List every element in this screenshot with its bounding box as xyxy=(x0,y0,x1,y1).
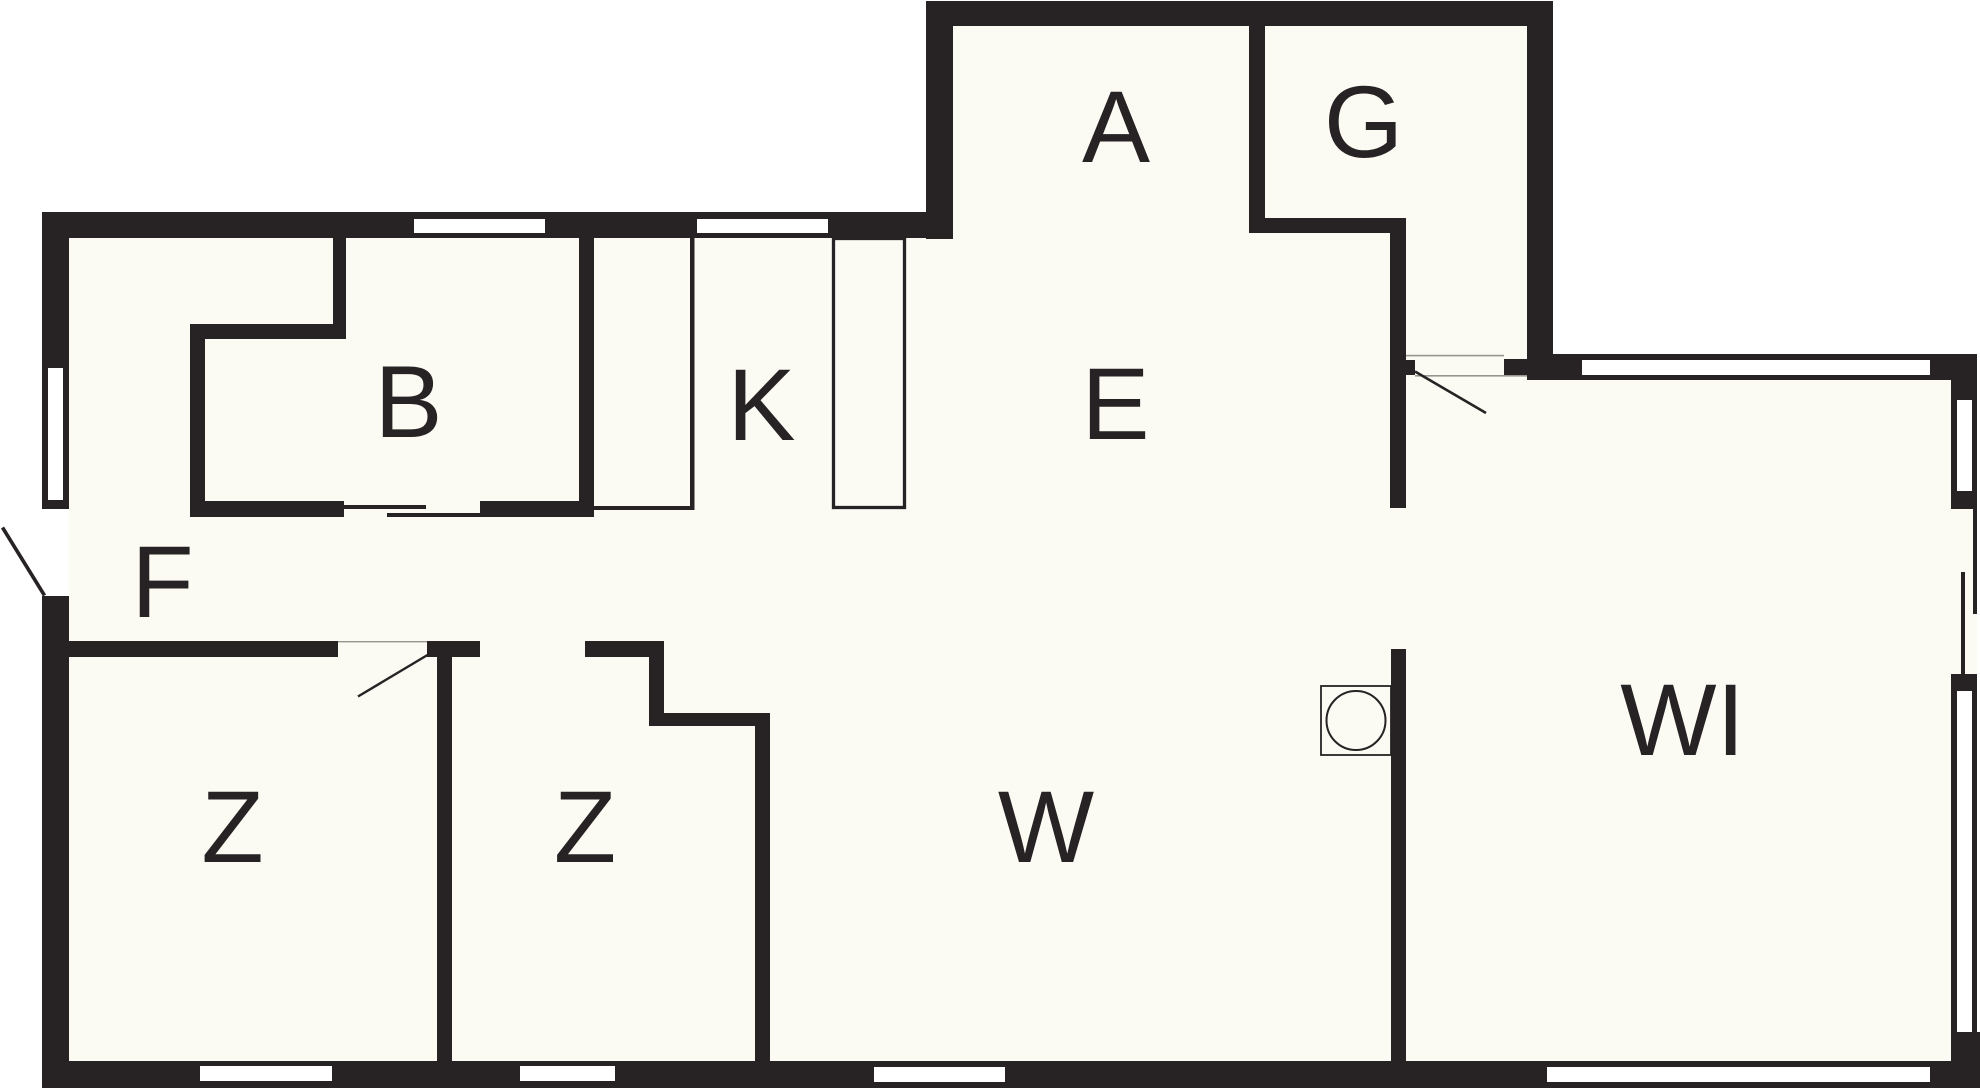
svg-text:B: B xyxy=(374,345,442,459)
svg-text:WI: WI xyxy=(1620,663,1745,777)
svg-text:Z: Z xyxy=(554,770,616,884)
svg-text:Z: Z xyxy=(201,770,263,884)
svg-text:W: W xyxy=(998,770,1094,884)
svg-text:G: G xyxy=(1324,65,1403,179)
svg-text:A: A xyxy=(1082,70,1150,184)
svg-text:E: E xyxy=(1081,347,1149,461)
svg-text:K: K xyxy=(727,348,795,462)
svg-text:F: F xyxy=(131,525,193,639)
